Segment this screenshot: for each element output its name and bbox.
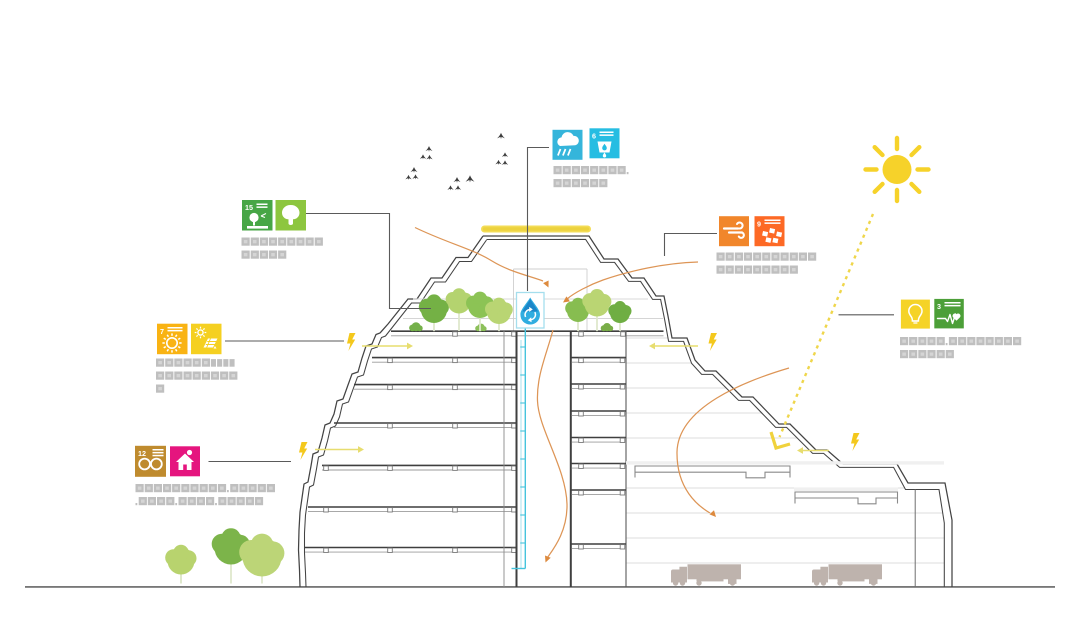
svg-text:12: 12 — [138, 449, 146, 458]
svg-text:7: 7 — [160, 327, 164, 336]
svg-text:3: 3 — [937, 302, 941, 311]
svg-text:15: 15 — [245, 203, 253, 212]
svg-text:6: 6 — [592, 132, 596, 141]
svg-text:9: 9 — [757, 220, 761, 229]
